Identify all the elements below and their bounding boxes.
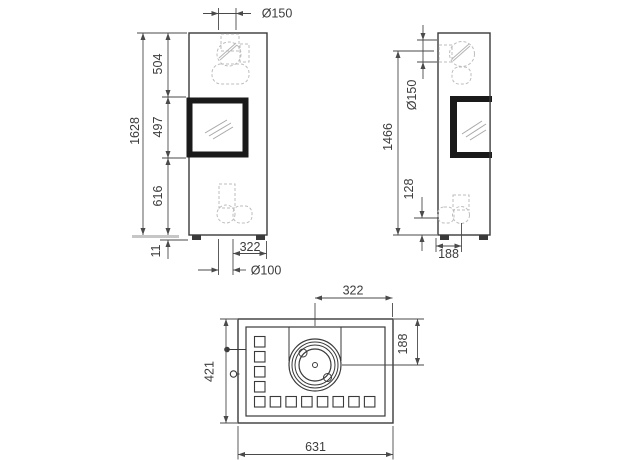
handle-knob xyxy=(224,347,230,353)
side-foot-right xyxy=(479,235,488,240)
side-door-window xyxy=(450,96,492,158)
dim-label-top-depth: 421 xyxy=(203,361,217,382)
dim-label-side-flue-diameter: Ø150 xyxy=(405,80,419,111)
front-window-frame xyxy=(190,101,246,155)
dim-label-side-flue-height: 1466 xyxy=(381,123,395,151)
dim-label-side-inlet-height: 128 xyxy=(402,179,416,200)
side-view xyxy=(438,33,492,240)
side-foot-left xyxy=(440,235,449,240)
latch-circle xyxy=(230,371,236,377)
dim-label-front-upper-section: 504 xyxy=(151,54,165,75)
dim-label-front-window-height: 497 xyxy=(151,117,165,138)
dim-label-side-flue-depth: 188 xyxy=(438,247,459,261)
front-foot-left xyxy=(192,235,201,240)
technical-drawing-sheet: 1628 504 497 616 11 Ø150 322 xyxy=(0,0,624,460)
stove-dimension-drawing: 1628 504 497 616 11 Ø150 322 xyxy=(0,0,624,460)
dim-label-front-overall-height: 1628 xyxy=(128,117,142,145)
dim-label-front-base-height: 11 xyxy=(149,244,163,257)
dim-label-front-inlet-diameter: Ø100 xyxy=(251,264,282,278)
top-view xyxy=(224,319,393,423)
dim-label-front-inlet-offset: 322 xyxy=(240,240,261,254)
dim-label-top-width: 631 xyxy=(305,440,326,454)
dim-label-front-lower-section: 616 xyxy=(151,186,165,207)
dim-label-front-flue-diameter: Ø150 xyxy=(262,7,293,21)
dim-label-top-flue-offset-x: 322 xyxy=(343,284,364,298)
front-door-window xyxy=(190,101,246,155)
dim-label-top-flue-offset-y: 188 xyxy=(396,334,410,355)
